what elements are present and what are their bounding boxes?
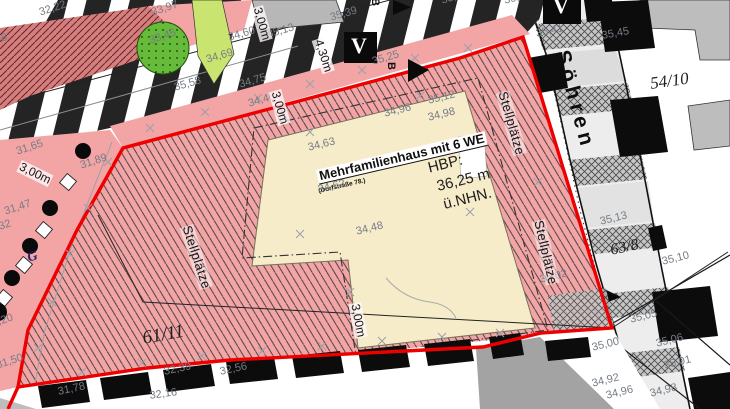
road-marking bbox=[545, 337, 591, 361]
tree-symbol bbox=[22, 238, 38, 254]
v-marker-box bbox=[344, 32, 377, 63]
building-terrace bbox=[458, 134, 487, 179]
site-plan: Söhren Mehrfamilienhaus mit 6 WE (Dorfst… bbox=[0, 0, 730, 409]
tree-symbol bbox=[42, 200, 58, 216]
tree-symbol bbox=[4, 270, 20, 286]
site-plan-drawing bbox=[0, 0, 730, 409]
building-footprint bbox=[610, 96, 668, 157]
tree-symbol bbox=[75, 143, 91, 159]
building-footprint bbox=[584, 0, 615, 22]
building-footprint bbox=[688, 372, 730, 409]
building-footprint bbox=[688, 100, 730, 150]
v-marker-box bbox=[543, 0, 581, 24]
